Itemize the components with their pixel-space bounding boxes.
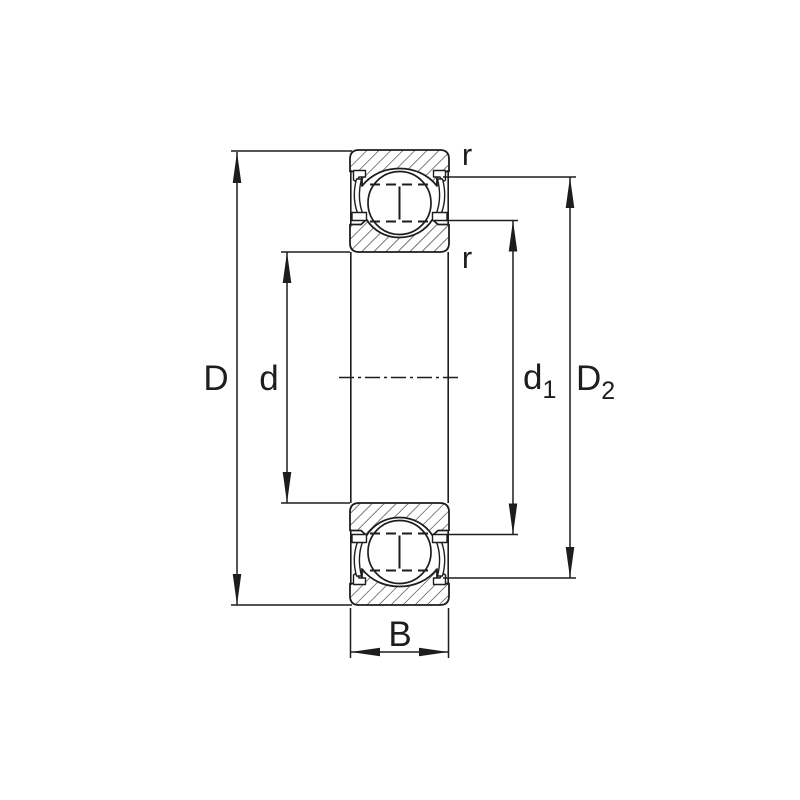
label-shoulder-diameter: d1 bbox=[523, 358, 556, 404]
label-recess-diameter: D2 bbox=[576, 359, 615, 405]
arrowhead-D2-bottom bbox=[566, 547, 575, 578]
label-shoulder-diameter-main: d bbox=[523, 358, 542, 397]
arrowhead-d-top bbox=[283, 252, 292, 283]
label-shoulder-diameter-sub: 1 bbox=[542, 376, 556, 404]
bearing-diagram-page: D d d1 D2 B r r bbox=[0, 0, 800, 800]
arrowhead-D2-top bbox=[566, 177, 575, 208]
label-width: B bbox=[388, 615, 411, 654]
bearing-diagram: D d d1 D2 B r r bbox=[0, 0, 800, 800]
bearing-top-section bbox=[350, 150, 449, 252]
arrowhead-d1-top bbox=[509, 221, 518, 252]
label-radius-inner: r bbox=[462, 240, 472, 275]
label-bore-diameter: d bbox=[259, 359, 278, 398]
label-outer-diameter: D bbox=[203, 359, 228, 398]
label-radius-outer: r bbox=[462, 137, 472, 172]
arrowhead-D-bottom bbox=[233, 574, 242, 605]
label-recess-diameter-sub: 2 bbox=[601, 377, 615, 405]
arrowhead-d1-bottom bbox=[509, 504, 518, 535]
arrowhead-B-right bbox=[419, 648, 449, 657]
arrowhead-B-left bbox=[351, 648, 381, 657]
bearing-bottom-section bbox=[350, 503, 449, 605]
label-recess-diameter-main: D bbox=[576, 359, 601, 398]
arrowhead-d-bottom bbox=[283, 472, 292, 503]
dimension-D bbox=[231, 151, 352, 605]
arrowhead-D-top bbox=[233, 152, 242, 183]
